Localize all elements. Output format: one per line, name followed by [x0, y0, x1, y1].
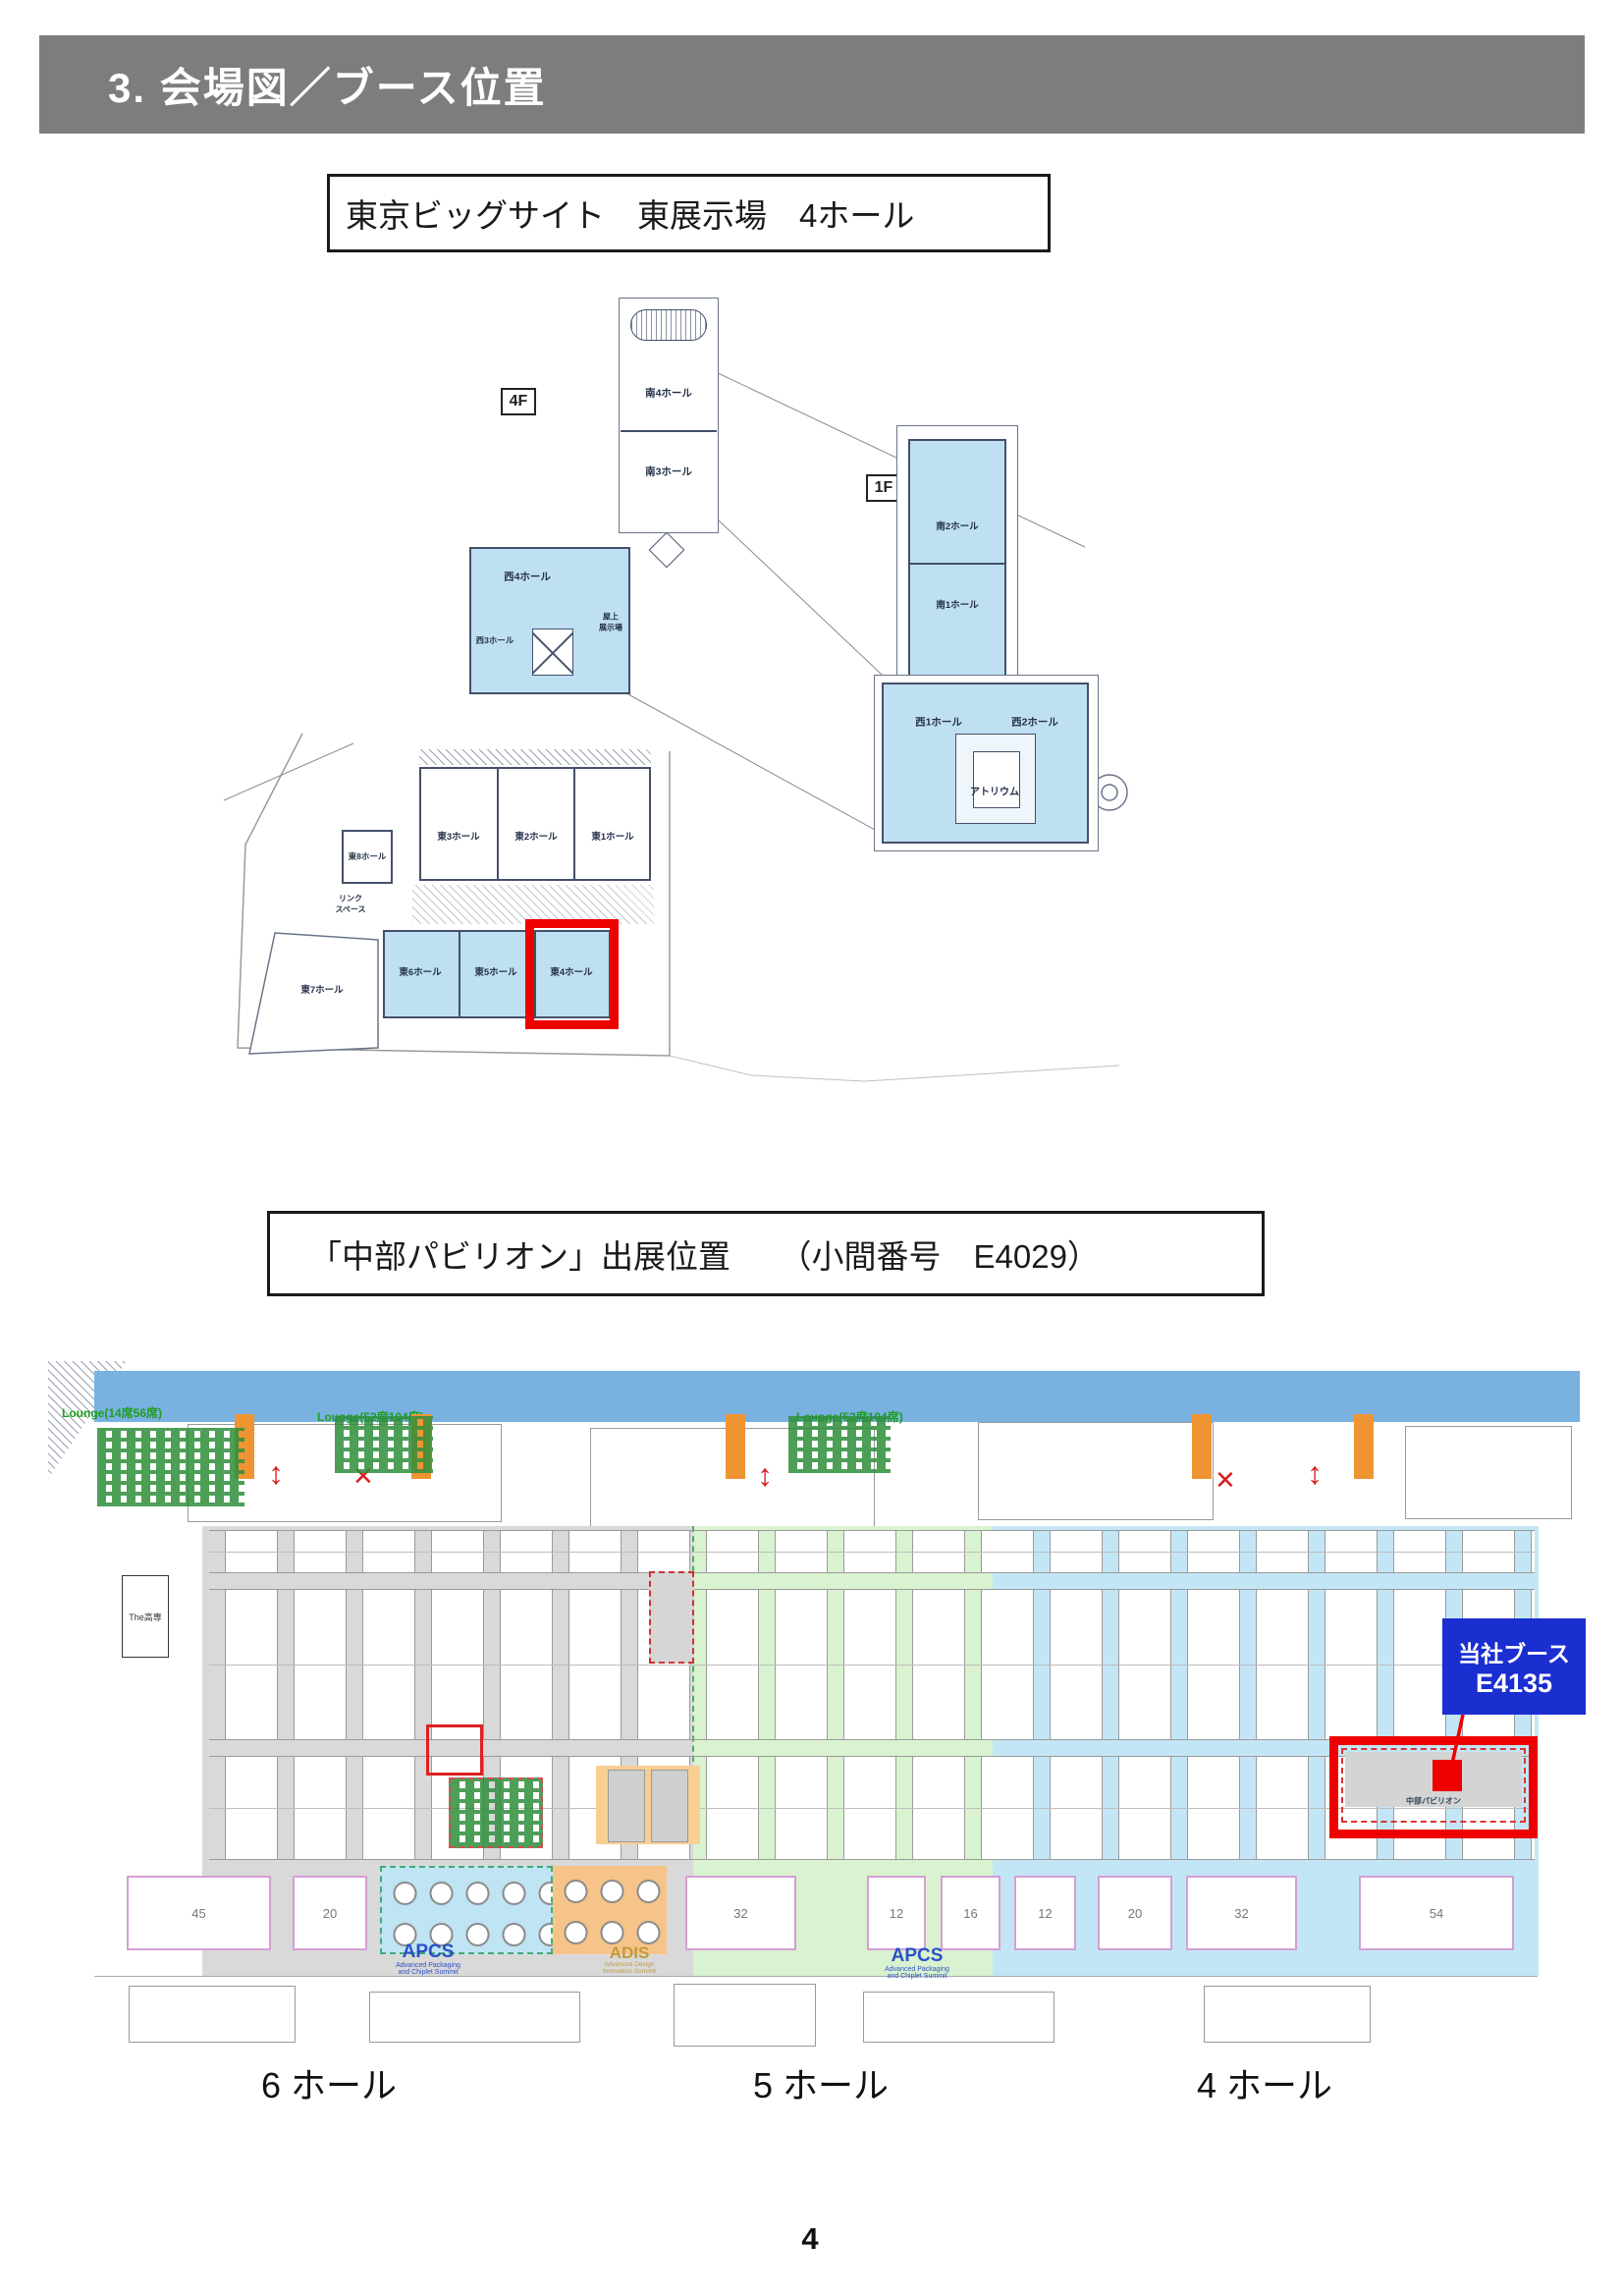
booth-size-label: 12 — [890, 1906, 903, 1921]
south-1f-divider — [908, 563, 1006, 565]
apcs-sub-1: Advanced Packaging — [364, 1962, 492, 1969]
page-title: 3. 会場図／ブース位置 — [108, 55, 547, 115]
rooftop-label-2: 展示場 — [599, 623, 622, 633]
venue-title-box: 東京ビッグサイト 東展示場 4ホール — [327, 174, 1051, 252]
hall-label-minami4: 南4ホール — [645, 386, 692, 401]
booth-block: 45 — [127, 1876, 271, 1950]
entrance-arrow-icon: ↕ — [1307, 1457, 1323, 1489]
hall-label-higashi8: 東8ホール — [349, 850, 387, 862]
header-bar: 3. 会場図／ブース位置 — [39, 35, 1585, 134]
adis-name: ADIS — [570, 1944, 688, 1962]
pillar-3 — [726, 1414, 745, 1479]
kosen-label: The高専 — [129, 1611, 162, 1623]
link-space-label-2: スペース — [335, 904, 365, 915]
document-page: 3. 会場図／ブース位置 東京ビッグサイト 東展示場 4ホール 南4ホール 南3… — [0, 0, 1622, 2296]
hall-label-4: 4 ホール — [1157, 2057, 1373, 2108]
round-tables-orange — [553, 1866, 667, 1954]
floor-label-4f: 4F — [501, 388, 536, 415]
east-halls-123 — [419, 767, 651, 881]
hall-label-6: 6 ホール — [221, 2057, 437, 2108]
booth-block: 12 — [867, 1876, 926, 1950]
entrance-arrow-icon: ↕ — [757, 1459, 773, 1491]
closed-x-icon: ✕ — [1215, 1467, 1236, 1493]
booth-row-top — [209, 1530, 1535, 1573]
apcs-sub-2: and Chiplet Summit — [364, 1969, 492, 1976]
hall-label-nishi2: 西2ホール — [1011, 715, 1058, 730]
east-corridor-hatch — [412, 885, 654, 924]
booth-block: 20 — [1098, 1876, 1172, 1950]
hall-label-higashi2: 東2ホール — [514, 829, 557, 843]
south-building-rooftop-oval — [630, 309, 707, 341]
hall-label-5: 5 ホール — [713, 2057, 929, 2108]
orange-patch-booth-1 — [608, 1770, 645, 1842]
hall-label-atrium: アトリウム — [970, 784, 1019, 798]
hall-label-minami1: 南1ホール — [936, 597, 978, 611]
structure-room-3 — [978, 1422, 1214, 1520]
pavilion-area-3 — [449, 1777, 543, 1848]
south-4f-divider — [621, 430, 717, 432]
hall-label-higashi6: 東6ホール — [399, 964, 441, 978]
booth-size-label: 20 — [323, 1906, 337, 1921]
structure-room-4 — [1405, 1426, 1572, 1519]
pavilion-area-1 — [649, 1571, 694, 1664]
booth-block: 54 — [1359, 1876, 1514, 1950]
west-4f-atrium-void — [532, 629, 573, 676]
booth-size-label: 20 — [1128, 1906, 1142, 1921]
hall-label-minami3: 南3ホール — [645, 465, 692, 479]
east-walkway-hatch — [419, 749, 651, 765]
booth-size-label: 54 — [1430, 1906, 1443, 1921]
link-space-label-1: リンク — [339, 894, 362, 904]
seating-area-left — [97, 1428, 244, 1506]
hall-label-higashi1: 東1ホール — [591, 829, 633, 843]
seating-area-mid — [335, 1416, 433, 1473]
booth-block: 32 — [1186, 1876, 1297, 1950]
east-divider-2 — [573, 767, 575, 881]
page-number: 4 — [766, 2221, 854, 2257]
our-booth-callout: 当社ブース E4135 — [1442, 1618, 1586, 1715]
kosen-booth: The高専 — [122, 1575, 169, 1658]
chubu-pavilion-label: 中部パビリオン — [1406, 1796, 1461, 1807]
callout-line-2: E4135 — [1476, 1668, 1552, 1699]
bottom-band-line — [94, 1976, 1538, 1977]
apcs2-sub-2: and Chiplet Summit — [853, 1973, 981, 1980]
pillar-4 — [1192, 1414, 1212, 1479]
hall-label-minami2: 南2ホール — [936, 519, 978, 532]
bottom-structure-1 — [129, 1986, 296, 2043]
bottom-structure-2 — [369, 1992, 580, 2043]
adis-logo: ADIS Advanced Design Innovation Summit — [570, 1944, 688, 1975]
bottom-structure-5 — [1204, 1986, 1371, 2043]
entrance-arrow-icon: ↕ — [268, 1457, 284, 1489]
booth-size-label: 45 — [191, 1906, 205, 1921]
east-divider-3 — [459, 930, 460, 1018]
callout-line-1: 当社ブース — [1458, 1635, 1570, 1668]
floor-plan-map: Lounge(14席56席) Lounge(52席104席) Lounge(52… — [40, 1357, 1582, 2047]
pillar-5 — [1354, 1414, 1374, 1479]
orange-patch-booth-2 — [651, 1770, 688, 1842]
apcs2-name: APCS — [853, 1946, 981, 1966]
booth-block: 32 — [685, 1876, 796, 1950]
our-booth-marker — [1433, 1760, 1462, 1791]
bottom-structure-3 — [674, 1984, 816, 2047]
hall-label-higashi3: 東3ホール — [437, 829, 479, 843]
booth-size-label: 32 — [733, 1906, 747, 1921]
booth-title-text: 「中部パビリオン」出展位置 （小間番号 E4029） — [309, 1230, 1100, 1278]
apcs-logo-2: APCS Advanced Packaging and Chiplet Summ… — [853, 1946, 981, 1981]
rooftop-label-1: 屋上 — [603, 612, 619, 623]
booth-title-box: 「中部パビリオン」出展位置 （小間番号 E4029） — [267, 1211, 1265, 1296]
booth-block: 12 — [1014, 1876, 1076, 1950]
adis-sub-2: Innovation Summit — [570, 1969, 688, 1976]
hall4-highlight-box — [525, 919, 619, 1029]
lounge-label-left: Lounge(14席56席) — [62, 1404, 162, 1421]
hall-label-nishi3: 西3ホール — [476, 634, 514, 646]
hall-label-nishi1: 西1ホール — [915, 715, 962, 730]
apcs-name: APCS — [364, 1942, 492, 1962]
bottom-structure-4 — [863, 1992, 1054, 2043]
hall-label-higashi5: 東5ホール — [474, 964, 516, 978]
booth-block: 20 — [293, 1876, 367, 1950]
booth-size-label: 12 — [1038, 1906, 1052, 1921]
east-divider-1 — [497, 767, 499, 881]
apcs2-sub-1: Advanced Packaging — [853, 1966, 981, 1973]
booth-row-1 — [209, 1589, 1535, 1740]
booth-block: 16 — [941, 1876, 1000, 1950]
pavilion-area-2 — [426, 1724, 483, 1776]
hall-label-higashi7: 東7ホール — [300, 982, 343, 996]
venue-title-text: 東京ビッグサイト 東展示場 4ホール — [346, 190, 914, 237]
seating-area-right — [788, 1416, 891, 1473]
booth-size-label: 16 — [963, 1906, 977, 1921]
booth-size-label: 32 — [1234, 1906, 1248, 1921]
apcs-logo: APCS Advanced Packaging and Chiplet Summ… — [364, 1942, 492, 1977]
atrium-inner — [973, 751, 1020, 808]
venue-overview-map: 南4ホール 南3ホール 4F 西4ホール 西3ホール 屋上 展示場 1F 南2ホ… — [177, 290, 1188, 1095]
hall-label-nishi4: 西4ホール — [504, 570, 551, 584]
